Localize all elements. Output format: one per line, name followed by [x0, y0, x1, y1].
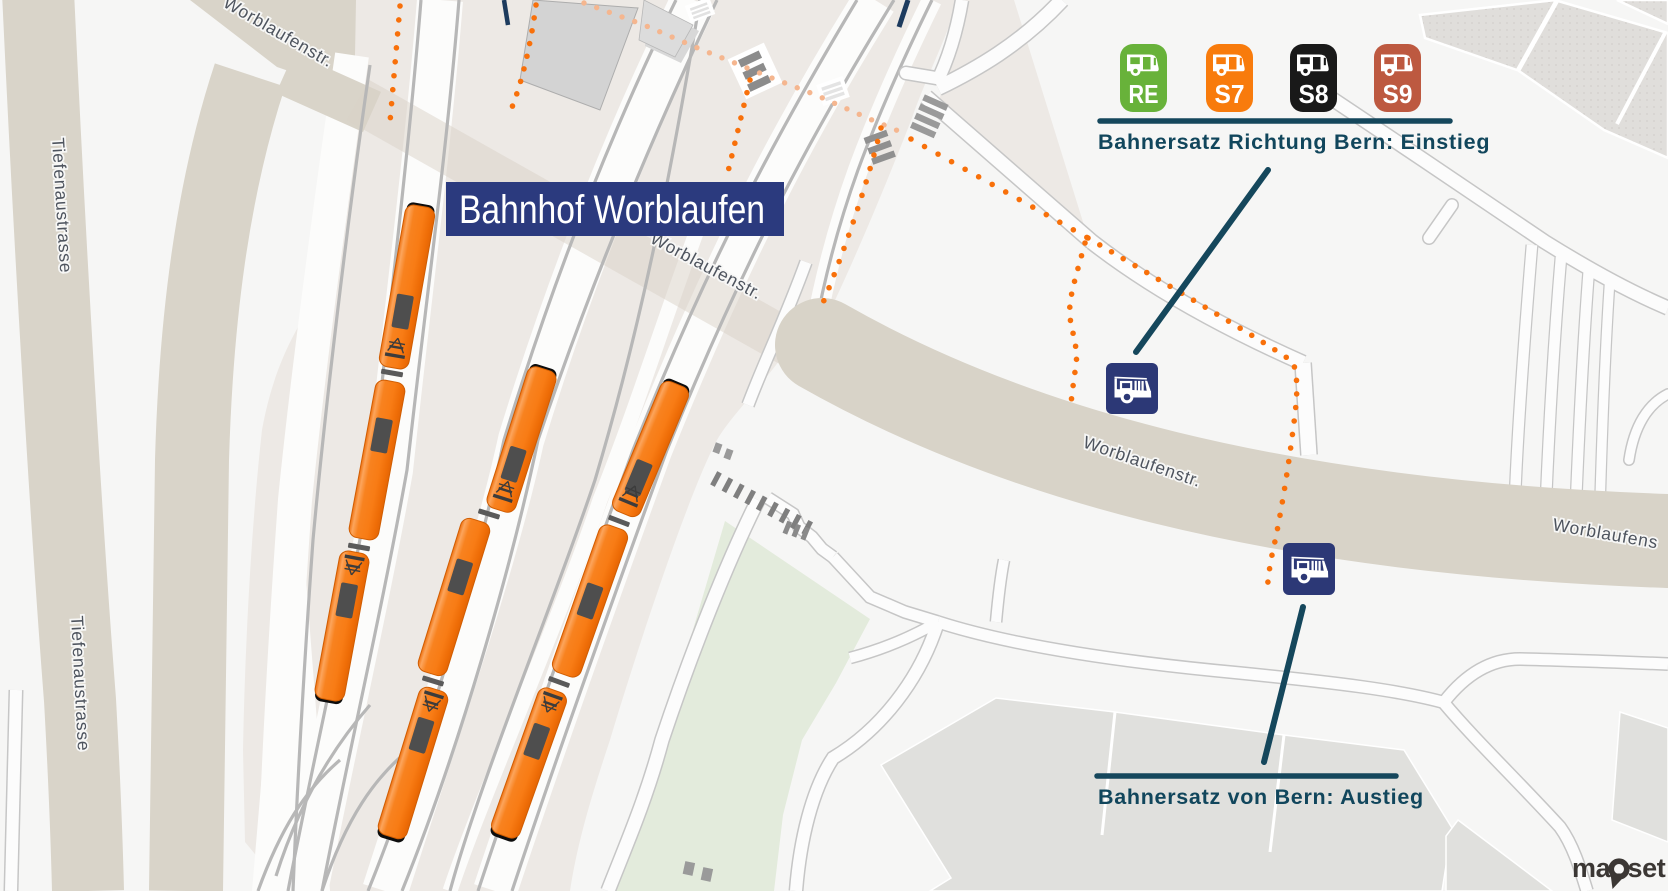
svg-text:Bahnhof Worblaufen: Bahnhof Worblaufen: [459, 188, 765, 232]
svg-text:set: set: [1628, 853, 1666, 883]
svg-text:Bahnersatz Richtung Bern: Eins: Bahnersatz Richtung Bern: Einstieg: [1098, 130, 1490, 154]
svg-text:S9: S9: [1383, 79, 1413, 109]
svg-text:S7: S7: [1215, 79, 1245, 109]
svg-text:Bahnersatz von Bern: Austieg: Bahnersatz von Bern: Austieg: [1098, 785, 1424, 809]
svg-text:S8: S8: [1299, 79, 1329, 109]
svg-text:ma: ma: [1572, 853, 1612, 883]
svg-text:RE: RE: [1129, 79, 1159, 109]
